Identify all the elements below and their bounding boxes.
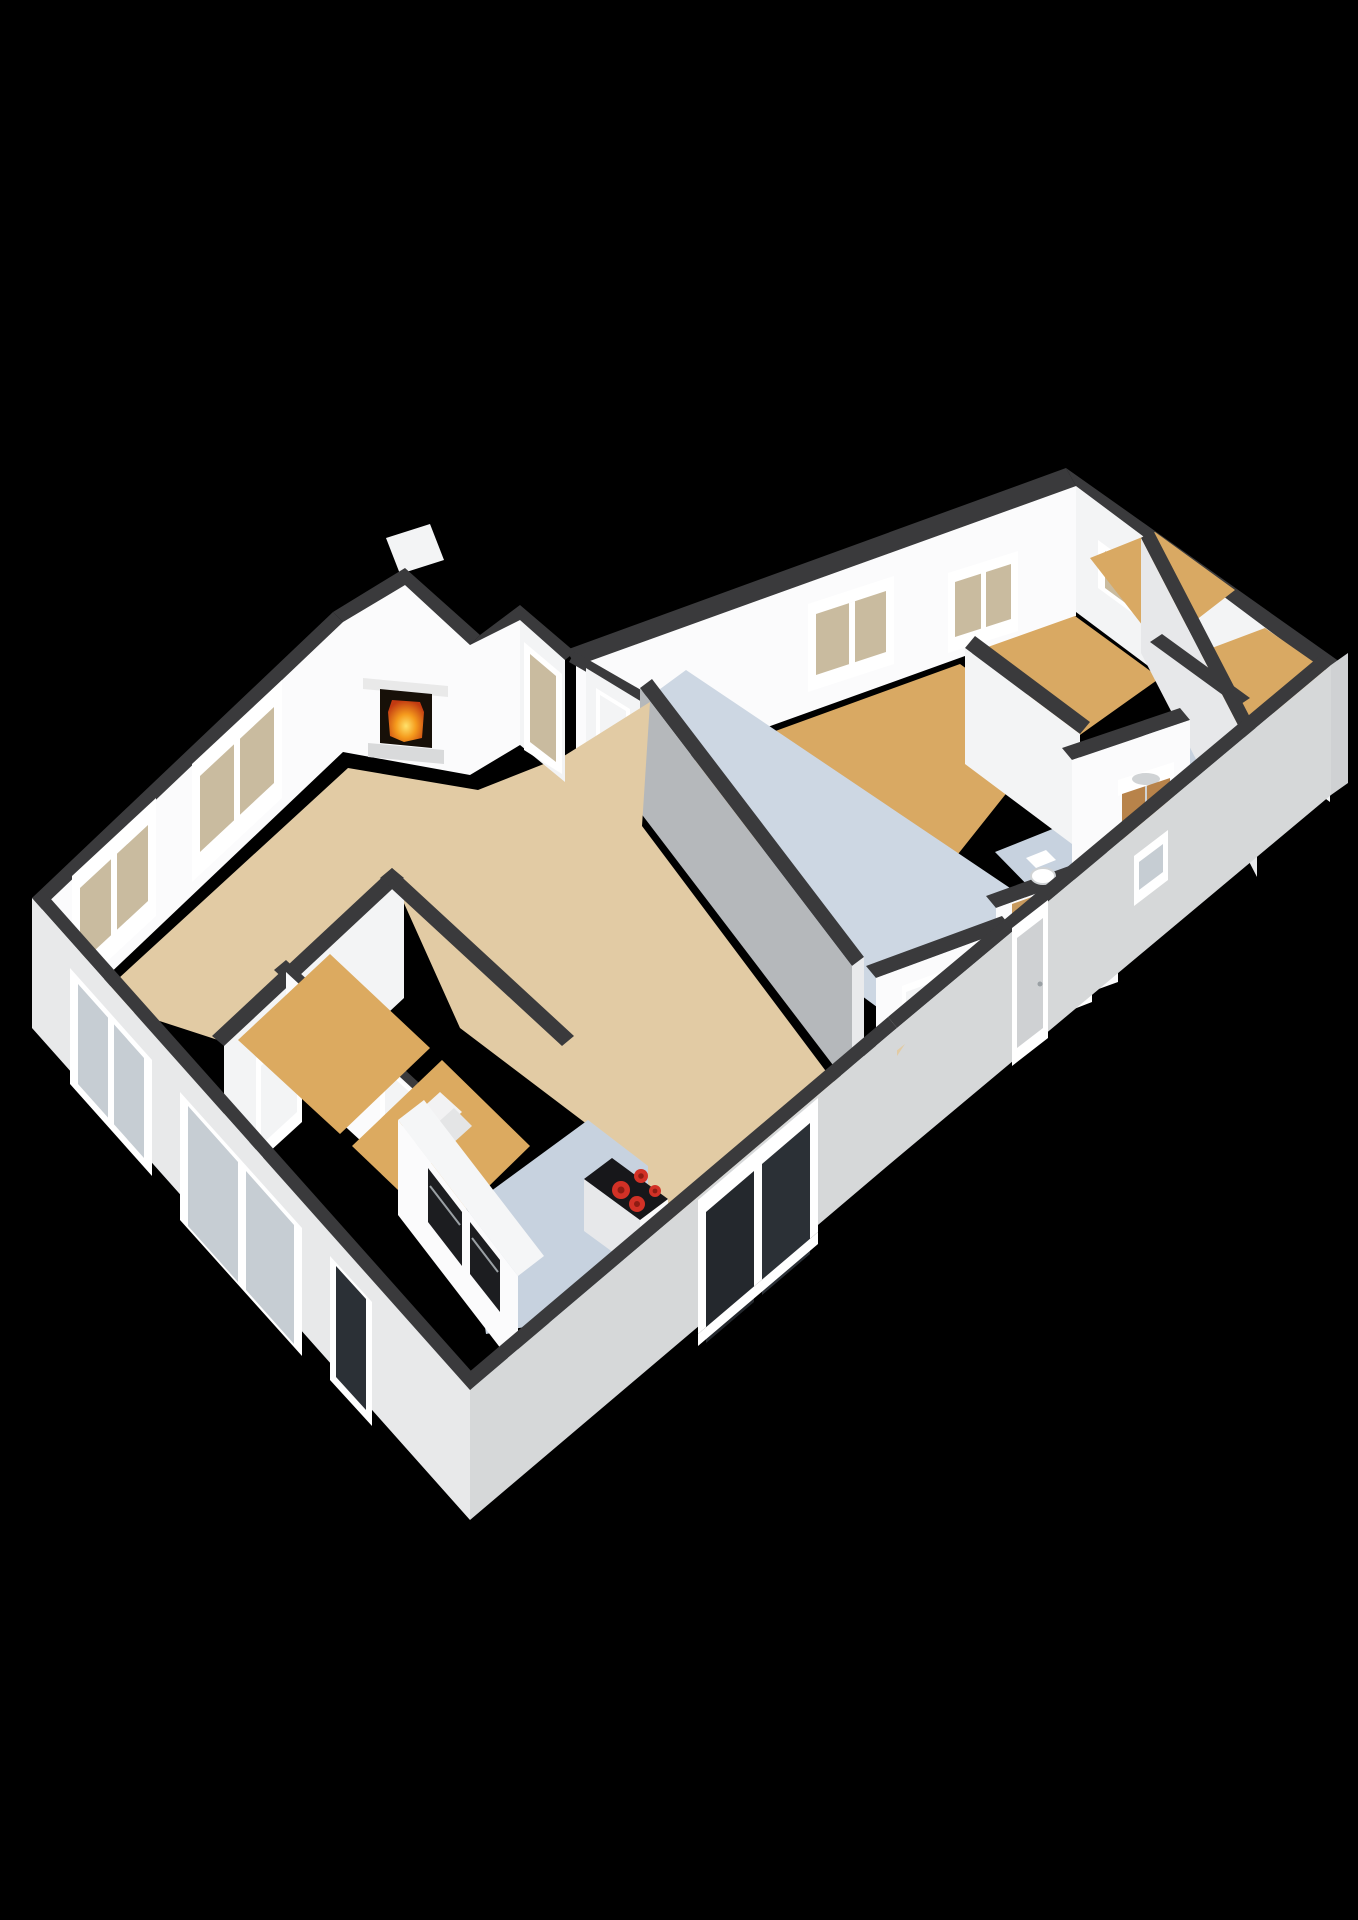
fire-flames [388,700,424,742]
floor-plan-canvas [0,0,1358,1920]
floor-plan-3d [0,0,1358,1920]
exterior-door [1012,900,1048,1066]
chimney-block [386,524,444,574]
bay-face-left [470,620,520,775]
right-wing-east-return [1331,653,1348,795]
